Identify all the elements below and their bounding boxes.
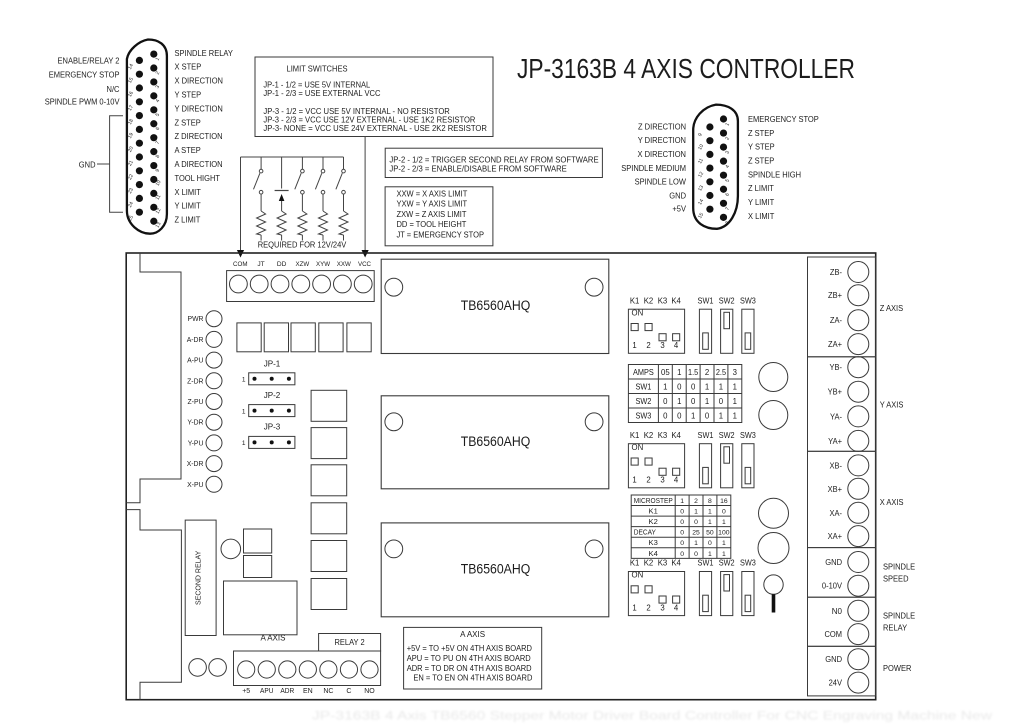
svg-text:YB-: YB- [830,363,843,372]
svg-text:0: 0 [680,530,684,537]
svg-text:ENABLE/RELAY 2: ENABLE/RELAY 2 [58,57,121,66]
svg-text:Z STEP: Z STEP [748,156,774,165]
svg-text:NC: NC [323,688,333,695]
svg-text:C: C [346,688,351,695]
svg-text:SPEED: SPEED [883,575,909,584]
svg-text:JP-3163B 4 AXIS CONTROLLER: JP-3163B 4 AXIS CONTROLLER [517,53,855,84]
svg-text:XZW: XZW [296,261,311,268]
svg-text:DD = TOOL HEIGHT: DD = TOOL HEIGHT [397,220,467,229]
svg-text:1: 1 [680,498,684,505]
svg-text:X-PU: X-PU [187,480,203,489]
svg-text:JP-2 - 1/2 = TRIGGER SECOND RE: JP-2 - 1/2 = TRIGGER SECOND RELAY FROM S… [389,155,598,164]
svg-text:XA-: XA- [830,509,843,518]
svg-text:100: 100 [718,530,730,537]
svg-text:SW1: SW1 [698,559,714,568]
svg-text:A DIRECTION: A DIRECTION [175,160,223,169]
svg-text:MICROSTEP: MICROSTEP [634,498,673,505]
svg-text:JP-1 - 2/3 = USE EXTERNAL VCC: JP-1 - 2/3 = USE EXTERNAL VCC [263,89,380,98]
svg-text:JP-2: JP-2 [264,390,281,400]
svg-text:50: 50 [706,530,714,537]
svg-text:TB6560AHQ: TB6560AHQ [461,561,531,577]
svg-text:GND: GND [825,558,842,567]
svg-text:SPINDLE HIGH: SPINDLE HIGH [748,170,801,179]
svg-text:2: 2 [646,476,650,485]
svg-text:4: 4 [674,476,679,485]
svg-text:K1: K1 [649,507,658,516]
svg-text:N0: N0 [832,607,843,616]
svg-text:1: 1 [691,411,695,420]
svg-text:REQUIRED FOR 12V/24V: REQUIRED FOR 12V/24V [258,241,347,250]
svg-text:A-PU: A-PU [187,356,203,365]
svg-text:K4: K4 [671,296,681,305]
svg-text:Z LIMIT: Z LIMIT [175,216,201,225]
svg-text:EMERGENCY STOP: EMERGENCY STOP [748,115,819,124]
svg-text:2: 2 [694,498,698,505]
svg-text:0: 0 [694,551,698,558]
svg-text:X AXIS: X AXIS [880,498,904,507]
svg-text:0: 0 [677,411,682,420]
svg-text:ZB+: ZB+ [828,291,842,300]
svg-text:0: 0 [694,519,698,526]
svg-text:A-DR: A-DR [187,335,204,344]
svg-text:DD: DD [277,261,287,268]
svg-text:GND: GND [79,160,96,169]
svg-text:XB-: XB- [830,461,843,470]
svg-text:SW2: SW2 [635,397,651,406]
svg-text:SW3: SW3 [635,411,651,420]
svg-text:1: 1 [242,408,246,415]
svg-text:ON: ON [632,571,644,580]
svg-text:JP-3: JP-3 [264,422,281,432]
svg-text:SW3: SW3 [740,296,756,305]
svg-text:0: 0 [719,397,724,406]
svg-text:NO: NO [364,688,375,695]
svg-text:K3: K3 [658,296,668,305]
svg-text:JP-3- NONE = VCC USE 24V EXTE: JP-3- NONE = VCC USE 24V EXTERNAL - USE … [263,124,487,133]
svg-text:COM: COM [825,630,843,639]
svg-text:ZXW = Z AXIS LIMIT: ZXW = Z AXIS LIMIT [397,210,467,219]
svg-text:Z DIRECTION: Z DIRECTION [638,122,686,131]
svg-text:EMERGENCY STOP: EMERGENCY STOP [49,70,120,79]
svg-text:1: 1 [694,509,698,516]
svg-text:Z STEP: Z STEP [748,129,774,138]
svg-text:Z-DR: Z-DR [187,376,203,385]
svg-text:SECOND RELAY: SECOND RELAY [196,550,203,605]
svg-text:A AXIS: A AXIS [460,630,485,639]
svg-text:SW2: SW2 [719,431,735,440]
svg-text:SW3: SW3 [740,431,756,440]
svg-text:X DIRECTION: X DIRECTION [638,150,687,159]
svg-text:1: 1 [705,397,709,406]
svg-text:1: 1 [677,368,681,377]
svg-text:SW3: SW3 [740,559,756,568]
svg-text:+5V = TO +5V ON 4TH AXIS BOARD: +5V = TO +5V ON 4TH AXIS BOARD [407,644,532,653]
svg-text:K3: K3 [649,538,658,547]
svg-text:X STEP: X STEP [175,63,202,72]
svg-text:0: 0 [722,509,726,516]
svg-text:Y-DR: Y-DR [187,418,203,427]
svg-text:DECAY: DECAY [634,530,657,537]
svg-text:ADR = TO DR ON 4TH AXIS BOARD: ADR = TO DR ON 4TH AXIS BOARD [407,664,532,673]
svg-text:ON: ON [632,443,644,452]
svg-text:SPINDLE: SPINDLE [883,612,915,621]
svg-text:1: 1 [733,411,737,420]
svg-text:XA+: XA+ [828,532,843,541]
svg-text:X LIMIT: X LIMIT [748,212,774,221]
svg-text:0-10V: 0-10V [822,582,843,591]
svg-text:1: 1 [733,382,737,391]
svg-text:Z-PU: Z-PU [188,397,204,406]
svg-text:YA+: YA+ [828,437,842,446]
svg-text:4: 4 [674,341,679,350]
svg-text:05: 05 [661,368,670,377]
svg-text:SW1: SW1 [635,382,651,391]
svg-text:GND: GND [669,191,686,200]
svg-text:ZA-: ZA- [830,316,842,325]
svg-text:SPINDLE PWM 0-10V: SPINDLE PWM 0-10V [45,98,120,107]
svg-text:N/C: N/C [107,85,120,94]
svg-text:0: 0 [663,411,668,420]
svg-text:TB6560AHQ: TB6560AHQ [461,434,531,450]
svg-text:2: 2 [646,603,650,612]
svg-text:X-DR: X-DR [187,459,204,468]
svg-text:1: 1 [708,551,712,558]
svg-text:Y-PU: Y-PU [188,438,204,447]
svg-text:YA-: YA- [830,412,842,421]
svg-text:1: 1 [705,382,709,391]
svg-text:RELAY: RELAY [883,624,908,633]
svg-text:A AXIS: A AXIS [261,634,286,643]
svg-text:COM: COM [233,261,248,268]
svg-text:LIMIT SWITCHES: LIMIT SWITCHES [287,65,348,74]
svg-text:X DIRECTION: X DIRECTION [175,77,224,86]
svg-text:Z STEP: Z STEP [175,118,201,127]
svg-text:3: 3 [660,603,664,612]
svg-text:2: 2 [705,368,709,377]
svg-text:0: 0 [691,382,696,391]
svg-text:Y AXIS: Y AXIS [880,400,904,409]
svg-text:0: 0 [677,382,682,391]
svg-text:0: 0 [680,519,684,526]
svg-text:SW2: SW2 [719,559,735,568]
svg-text:0: 0 [705,411,710,420]
svg-text:1: 1 [242,440,246,447]
svg-text:GND: GND [825,655,842,664]
svg-text:A STEP: A STEP [175,146,201,155]
svg-text:EN: EN [303,688,313,695]
svg-text:1: 1 [632,603,636,612]
svg-text:0: 0 [680,509,684,516]
svg-text:ZB-: ZB- [830,268,842,277]
svg-text:PWR: PWR [188,314,204,323]
svg-text:1: 1 [722,540,726,547]
svg-text:1: 1 [722,551,726,558]
svg-text:1: 1 [632,341,636,350]
svg-text:TOOL HIGHT: TOOL HIGHT [175,174,221,183]
svg-text:0: 0 [663,397,668,406]
svg-text:YXW = Y AXIS LIMIT: YXW = Y AXIS LIMIT [397,200,468,209]
svg-text:SW1: SW1 [698,431,714,440]
svg-text:24V: 24V [829,679,843,688]
svg-text:4: 4 [674,603,679,612]
svg-text:Z DIRECTION: Z DIRECTION [175,132,223,141]
svg-text:Y STEP: Y STEP [748,142,775,151]
svg-text:APU: APU [260,688,274,695]
svg-text:K3: K3 [658,431,668,440]
svg-text:K4: K4 [671,431,681,440]
svg-text:XXW: XXW [337,261,352,268]
svg-text:K3: K3 [658,559,668,568]
svg-text:Y STEP: Y STEP [175,91,202,100]
svg-text:K2: K2 [644,559,654,568]
svg-text:SPINDLE: SPINDLE [883,563,915,572]
svg-text:1: 1 [632,476,636,485]
svg-text:3: 3 [660,341,664,350]
svg-text:X LIMIT: X LIMIT [175,188,201,197]
svg-text:YB+: YB+ [828,388,843,397]
svg-text:1: 1 [677,397,681,406]
svg-text:K1: K1 [630,559,640,568]
svg-text:K2: K2 [649,517,658,526]
svg-text:JT: JT [257,261,264,268]
svg-text:2.5: 2.5 [716,368,727,377]
svg-text:JT = EMERGENCY STOP: JT = EMERGENCY STOP [397,231,485,240]
svg-text:1: 1 [708,519,712,526]
svg-text:APU = TO PU ON 4TH AXIS BOARD: APU = TO PU ON 4TH AXIS BOARD [407,654,531,663]
svg-text:K1: K1 [630,431,640,440]
svg-text:JP-2 - 2/3 = ENABLE/DISABLE FR: JP-2 - 2/3 = ENABLE/DISABLE FROM SOFTWAR… [389,164,566,173]
svg-text:SPINDLE MEDIUM: SPINDLE MEDIUM [621,164,686,173]
svg-text:Y DIRECTION: Y DIRECTION [638,136,687,145]
svg-text:XXW = X AXIS LIMIT: XXW = X AXIS LIMIT [397,190,468,199]
svg-text:SW2: SW2 [719,296,735,305]
svg-text:XB+: XB+ [828,485,843,494]
svg-text:TB6560AHQ: TB6560AHQ [461,298,531,314]
svg-text:3: 3 [733,368,737,377]
svg-text:+5V: +5V [672,205,686,214]
svg-text:0: 0 [691,397,696,406]
svg-text:2: 2 [646,341,650,350]
svg-text:8: 8 [708,498,712,505]
svg-text:K4: K4 [671,559,681,568]
svg-text:Y DIRECTION: Y DIRECTION [175,104,224,113]
svg-text:K4: K4 [649,549,658,558]
svg-text:Y LIMIT: Y LIMIT [175,202,201,211]
svg-text:1: 1 [708,509,712,516]
svg-text:POWER: POWER [883,664,912,673]
svg-text:RELAY 2: RELAY 2 [335,638,366,647]
svg-text:SW1: SW1 [698,296,714,305]
svg-text:1: 1 [242,377,246,384]
svg-text:Y LIMIT: Y LIMIT [748,198,774,207]
svg-text:ZA+: ZA+ [828,340,842,349]
svg-text:VCC: VCC [358,261,371,268]
svg-text:XYW: XYW [316,261,331,268]
svg-text:JP-3163B 4 Axis TB6560 Stepper: JP-3163B 4 Axis TB6560 Stepper Motor Dri… [312,711,993,723]
svg-text:1: 1 [663,382,667,391]
svg-text:0: 0 [708,540,712,547]
svg-text:1: 1 [719,411,723,420]
svg-text:ON: ON [632,308,644,317]
svg-text:1: 1 [722,519,726,526]
svg-text:K1: K1 [630,296,640,305]
svg-text:EN = TO EN ON 4TH AXIS BOARD: EN = TO EN ON 4TH AXIS BOARD [413,674,532,683]
svg-text:0: 0 [680,540,684,547]
svg-text:1: 1 [694,540,698,547]
svg-text:0: 0 [680,551,684,558]
svg-text:SPINDLE RELAY: SPINDLE RELAY [175,49,234,58]
svg-text:Z AXIS: Z AXIS [880,304,903,313]
svg-text:1: 1 [733,397,737,406]
svg-text:25: 25 [692,530,700,537]
svg-text:Z LIMIT: Z LIMIT [748,184,774,193]
svg-text:K2: K2 [644,431,654,440]
svg-text:16: 16 [720,498,728,505]
svg-text:+5: +5 [242,688,250,695]
svg-text:SPINDLE LOW: SPINDLE LOW [635,177,687,186]
svg-text:3: 3 [660,476,664,485]
svg-text:K2: K2 [644,296,654,305]
svg-text:JP-1: JP-1 [264,359,281,369]
svg-text:1.5: 1.5 [688,368,699,377]
svg-text:ADR: ADR [280,688,294,695]
svg-text:AMPS: AMPS [633,368,654,377]
svg-text:1: 1 [719,382,723,391]
